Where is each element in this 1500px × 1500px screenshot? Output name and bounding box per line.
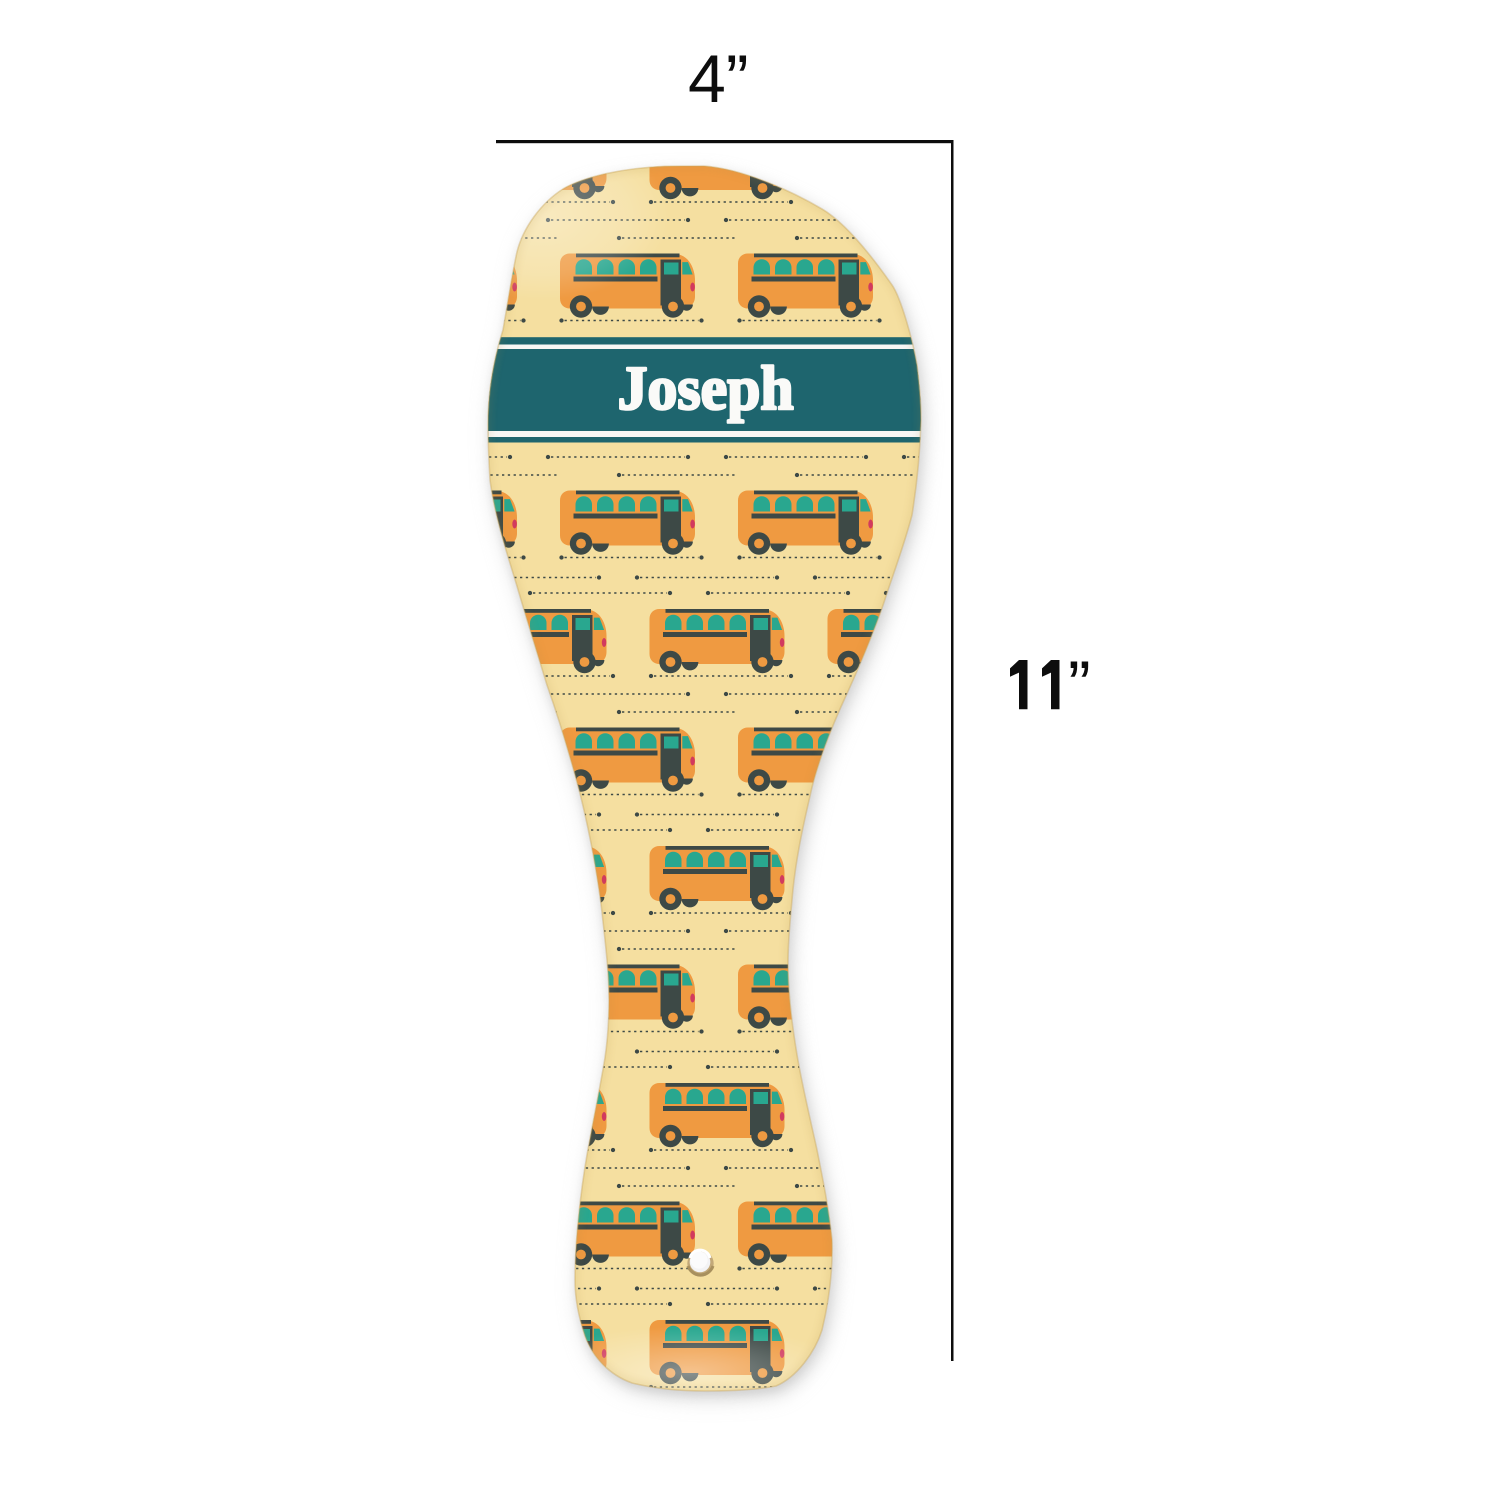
svg-text:4”: 4” (688, 41, 748, 117)
svg-text:”: ” (1068, 647, 1091, 723)
svg-text:Joseph: Joseph (618, 355, 794, 423)
